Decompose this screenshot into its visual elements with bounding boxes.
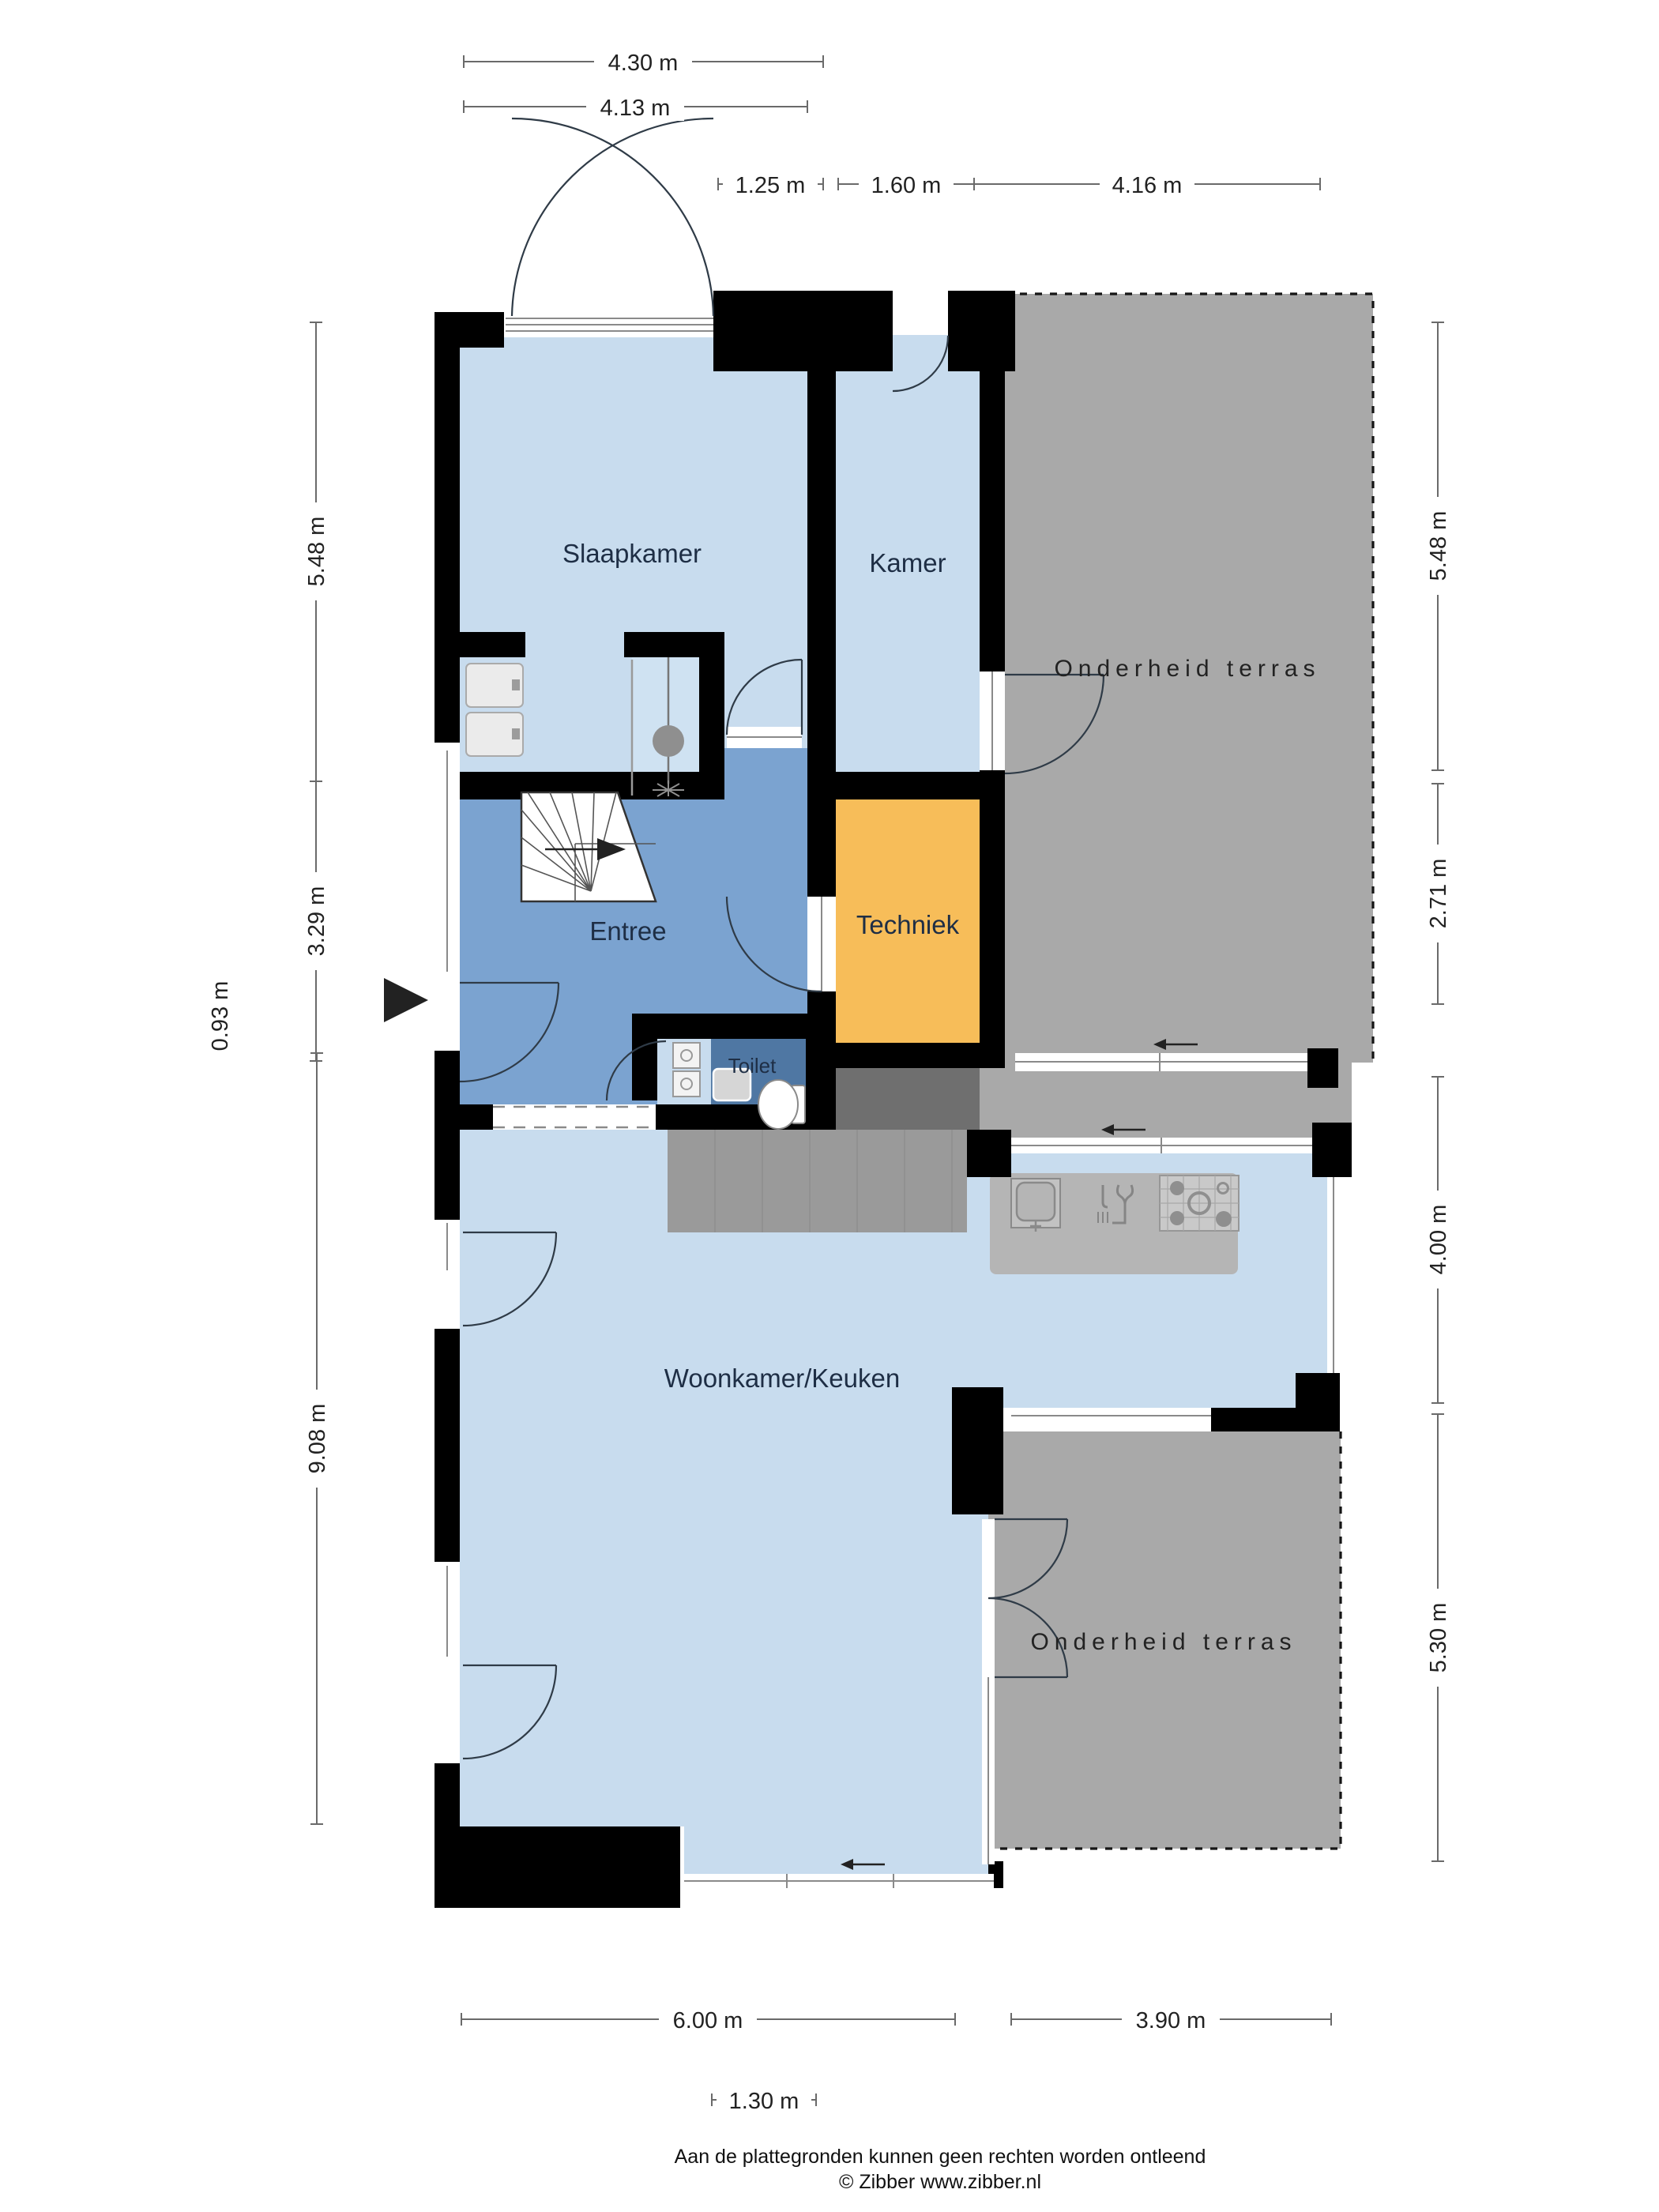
dim-left-908: 9.08 m xyxy=(303,1053,331,1824)
dim-label: 3.29 m xyxy=(304,886,329,957)
dim-label: 9.08 m xyxy=(305,1404,330,1474)
dim-label: 5.30 m xyxy=(1426,1603,1451,1673)
floorplan-page: Slaapkamer Kamer Onderheid terras Entree… xyxy=(0,0,1659,2212)
meter-box-icon xyxy=(673,1043,700,1068)
dim-bottom-600: 6.00 m xyxy=(461,2005,955,2033)
shower-head xyxy=(653,725,684,757)
dim-label: 1.25 m xyxy=(735,173,806,198)
dim-right-271: 2.71 m xyxy=(1424,784,1452,1004)
dim-label: 1.60 m xyxy=(871,173,942,198)
dim-right-548: 5.48 m xyxy=(1424,322,1452,770)
toilet-label: Toilet xyxy=(728,1054,777,1078)
techniek-step-floor xyxy=(836,1068,980,1130)
paving-strip-floor xyxy=(967,1063,1352,1138)
terras-onder-label: Onderheid terras xyxy=(1030,1629,1296,1655)
dim-label: 4.30 m xyxy=(608,51,679,76)
dim-left-548: 5.48 m xyxy=(302,322,330,781)
terras-boven-label: Onderheid terras xyxy=(1054,656,1320,682)
dim-right-400: 4.00 m xyxy=(1424,1077,1452,1403)
entrance-arrow-icon xyxy=(384,978,428,1022)
dim-label: 0.93 m xyxy=(208,981,233,1051)
dim-left-093: 0.93 m xyxy=(205,969,234,1063)
hall-floor xyxy=(724,748,807,799)
dim-label: 2.71 m xyxy=(1426,859,1451,929)
dim-label: 4.16 m xyxy=(1112,173,1183,198)
sink-basin xyxy=(1017,1183,1055,1221)
dim-top-413: 4.13 m xyxy=(464,92,807,121)
counter-top xyxy=(668,1130,967,1232)
dim-bottom-390: 3.90 m xyxy=(1011,2005,1331,2033)
threshold xyxy=(493,1104,656,1130)
footer-copyright: © Zibber www.zibber.nl xyxy=(839,2171,1041,2193)
dim-label: 5.48 m xyxy=(304,517,329,587)
dim-label: 6.00 m xyxy=(673,2008,743,2033)
kamer-label: Kamer xyxy=(869,548,946,577)
dim-label: 4.13 m xyxy=(600,96,671,121)
dim-label: 3.90 m xyxy=(1136,2008,1206,2033)
dim-bottom-130: 1.30 m xyxy=(712,2086,816,2114)
footer-disclaimer: Aan de plattegronden kunnen geen rechten… xyxy=(675,2146,1206,2168)
dim-top-125: 1.25 m xyxy=(718,170,823,198)
dim-label: 4.00 m xyxy=(1426,1205,1451,1275)
threshold-mat xyxy=(493,1104,656,1130)
entree-label: Entree xyxy=(589,916,666,946)
washbasin-tap xyxy=(512,728,520,739)
dim-top-416: 4.16 m xyxy=(974,170,1320,198)
floor-plan-canvas: Slaapkamer Kamer Onderheid terras Entree… xyxy=(0,0,1659,2212)
woonkamer-label: Woonkamer/Keuken xyxy=(664,1364,900,1393)
dim-right-530: 5.30 m xyxy=(1424,1414,1452,1861)
kitchen-counter xyxy=(668,1130,967,1232)
dim-label: 5.48 m xyxy=(1426,511,1451,581)
kitchen-island xyxy=(990,1173,1239,1274)
dim-top-160: 1.60 m xyxy=(838,170,974,198)
dim-left-329: 3.29 m xyxy=(302,781,330,1061)
paving-strip xyxy=(967,1063,1352,1138)
hob-icon xyxy=(1160,1176,1239,1231)
techniek-label: Techniek xyxy=(856,910,960,939)
hob-burner xyxy=(1170,1181,1184,1195)
hob-burner xyxy=(1216,1211,1232,1227)
dim-label: 1.30 m xyxy=(729,2089,799,2114)
washbasin-tap xyxy=(512,679,520,690)
toilet-icon xyxy=(758,1080,798,1129)
footer: Aan de plattegronden kunnen geen rechten… xyxy=(675,2146,1206,2193)
hob-burner xyxy=(1170,1211,1184,1225)
dim-top-430: 4.30 m xyxy=(464,47,823,76)
meter-box-icon xyxy=(673,1071,700,1097)
sink-icon xyxy=(1011,1179,1060,1232)
slaapkamer-label: Slaapkamer xyxy=(562,539,702,568)
